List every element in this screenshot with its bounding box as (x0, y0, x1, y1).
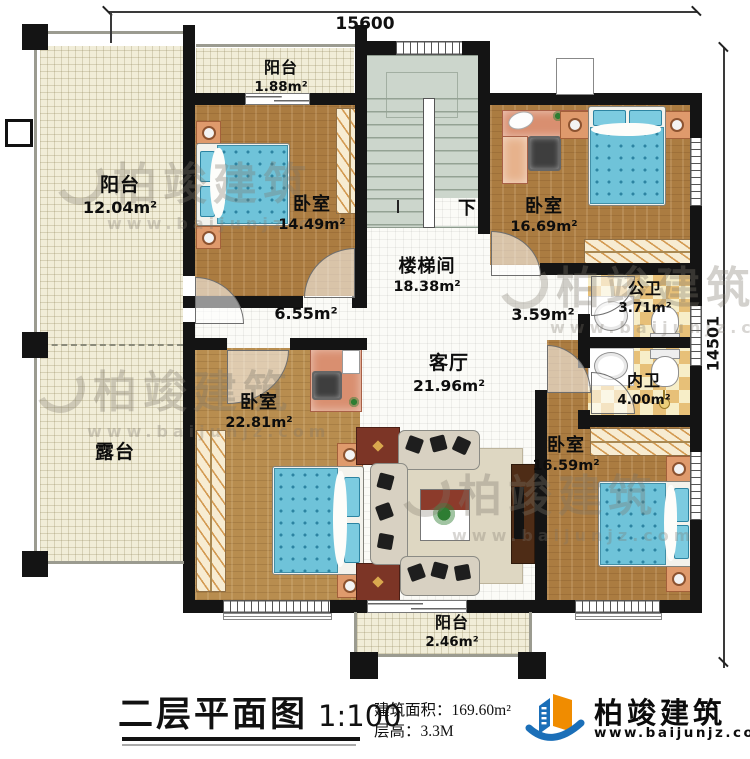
side-table (356, 563, 400, 601)
bed (272, 466, 364, 575)
sofa (398, 430, 480, 470)
floor-height-row: 层高：3.3M (374, 721, 511, 742)
pillar (22, 332, 48, 358)
wall-segment (660, 600, 702, 613)
pillar (518, 652, 546, 679)
building-area-row: 建筑面积：169.60m² (374, 700, 511, 721)
dimension-right-label: 14501 (704, 304, 723, 384)
stair-rail (423, 98, 435, 228)
parapet (46, 31, 183, 34)
dimension-right-line (723, 47, 725, 668)
pillar (350, 652, 378, 679)
stair-down-label: 下 (458, 194, 476, 220)
wall-segment (540, 263, 702, 275)
label-stairwell: 楼梯间 18.38m² (367, 255, 487, 297)
wall-segment (355, 41, 396, 55)
extension-line (110, 11, 112, 43)
label-living: 客厅 21.96m² (389, 351, 509, 396)
window (690, 452, 702, 520)
sofa (400, 556, 480, 596)
building-stats: 建筑面积：169.60m² 层高：3.3M (374, 700, 511, 742)
dimension-top-line (108, 11, 698, 13)
wall-segment (183, 600, 223, 613)
parapet (196, 44, 355, 47)
wall-segment (590, 337, 692, 348)
wall-segment (578, 415, 702, 427)
nightstand (666, 566, 692, 592)
parapet (34, 40, 37, 564)
window-sill (223, 613, 332, 620)
computer-monitor (528, 136, 561, 171)
label-bedroom-se: 卧室 16.59m² (506, 434, 626, 476)
page-title: 二层平面图 (118, 686, 308, 737)
plant-icon (348, 396, 360, 408)
plant-icon (431, 501, 457, 527)
nightstand (666, 456, 692, 482)
brand-url: www.baijunjz.com (594, 725, 750, 741)
sliding-door (367, 600, 467, 613)
label-bath-private: 内卫 4.00m² (596, 371, 692, 409)
wall-segment (467, 600, 575, 613)
wall-segment (290, 338, 367, 350)
wall-segment (183, 338, 227, 350)
window (396, 41, 462, 55)
nightstand (560, 111, 589, 139)
nightstand (196, 121, 221, 144)
brand-logo-icon (524, 686, 588, 748)
bed (588, 106, 666, 206)
desk-shelf (502, 136, 528, 184)
nightstand (196, 226, 221, 249)
terrace-divider (42, 344, 183, 346)
wall-segment (330, 600, 367, 613)
book (342, 350, 360, 374)
wall-segment (690, 93, 702, 138)
sofa (370, 463, 408, 565)
label-balcony-top: 阳台 1.88m² (221, 58, 341, 96)
window (575, 600, 660, 613)
nightstand (662, 111, 691, 139)
window (690, 138, 702, 206)
pillar (22, 24, 48, 50)
stair-treads (366, 98, 478, 198)
label-bedroom-sw: 卧室 22.81m² (199, 391, 319, 433)
wall-segment (183, 322, 195, 613)
floor-plan: 15600 14501 柏竣建筑 www.baijunjz.com 柏竣建筑 w… (0, 0, 750, 759)
column-marker (5, 119, 33, 147)
side-table (356, 427, 400, 465)
label-hall-east: 3.59m² (493, 305, 593, 324)
label-balcony-left: 阳台 12.04m² (55, 173, 185, 218)
label-balcony-bottom: 阳台 2.46m² (392, 613, 512, 651)
parapet (34, 561, 184, 564)
title-block: 二层平面图 1:100 (118, 686, 402, 737)
wall-segment (535, 390, 547, 602)
window-bay-outline (556, 58, 594, 95)
label-hall-west: 6.55m² (256, 304, 356, 323)
bed (598, 481, 693, 567)
wardrobe (584, 239, 692, 265)
dimension-top-label: 15600 (310, 14, 420, 34)
wall-segment (355, 25, 367, 308)
wardrobe (196, 430, 226, 592)
parapet (529, 612, 532, 657)
window-sill (575, 613, 662, 620)
title-underline-thin (122, 744, 356, 746)
wall-segment (183, 25, 195, 276)
label-bedroom-nw: 卧室 14.49m² (252, 193, 372, 235)
label-bedroom-ne: 卧室 16.69m² (484, 195, 604, 237)
wall-segment (490, 93, 702, 105)
title-underline (122, 737, 360, 741)
parapet (354, 654, 532, 657)
window (223, 600, 330, 613)
label-bath-public: 公卫 3.71m² (597, 279, 693, 317)
parapet (354, 612, 357, 657)
label-terrace: 露台 (55, 440, 175, 465)
stair-direction-tick (397, 200, 399, 213)
floor-balcony-left (40, 46, 183, 562)
tv-icon (514, 487, 524, 539)
pillar (22, 551, 48, 577)
